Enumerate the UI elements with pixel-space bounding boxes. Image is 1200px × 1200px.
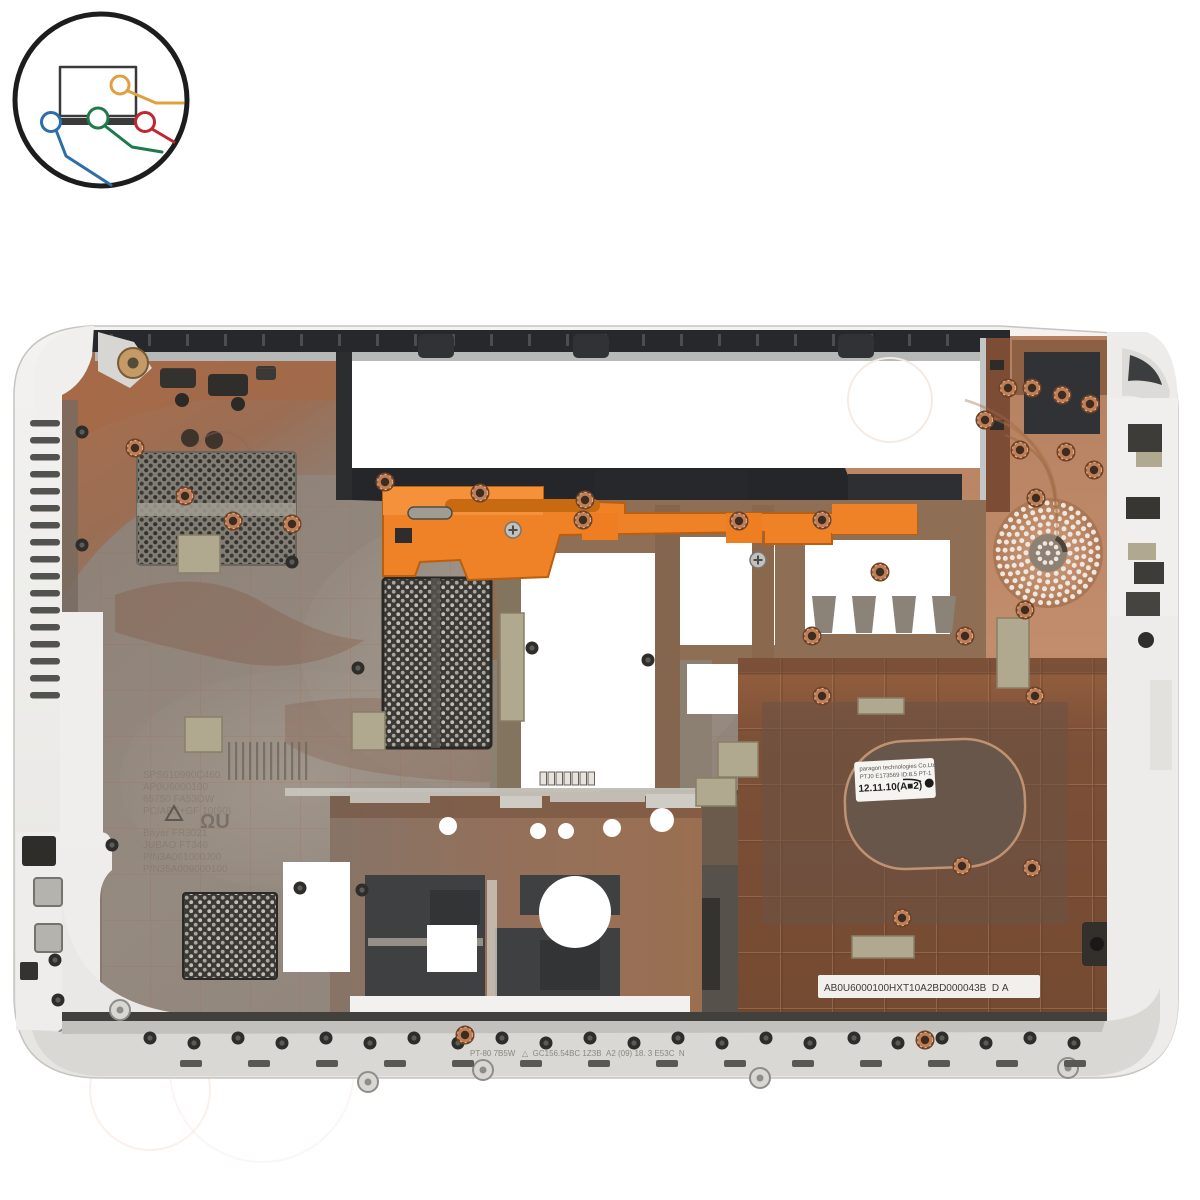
svg-text:ΩU: ΩU [200,811,230,833]
svg-text:P/N35A009000100: P/N35A009000100 [143,864,228,875]
svg-text:Bayer FR3021: Bayer FR3021 [143,828,208,839]
svg-text:AB0U6000100HXT10A2BD000043B D: AB0U6000100HXT10A2BD000043B D A [824,983,1009,994]
svg-text:PT-80 7B5W △ GC156.54BC 1Z3: PT-80 7B5W △ GC156.54BC 1Z3B A2 (09) 18.… [470,1049,685,1058]
svg-text:JUBAO FT346: JUBAO FT346 [143,840,208,851]
svg-text:65750 FA53OW: 65750 FA53OW [143,794,215,805]
svg-text:P/N3A061000J00: P/N3A061000J00 [143,852,222,863]
svg-text:AP0U6000100: AP0U6000100 [143,782,208,793]
svg-text:SPS610990C460: SPS610990C460 [143,770,221,781]
